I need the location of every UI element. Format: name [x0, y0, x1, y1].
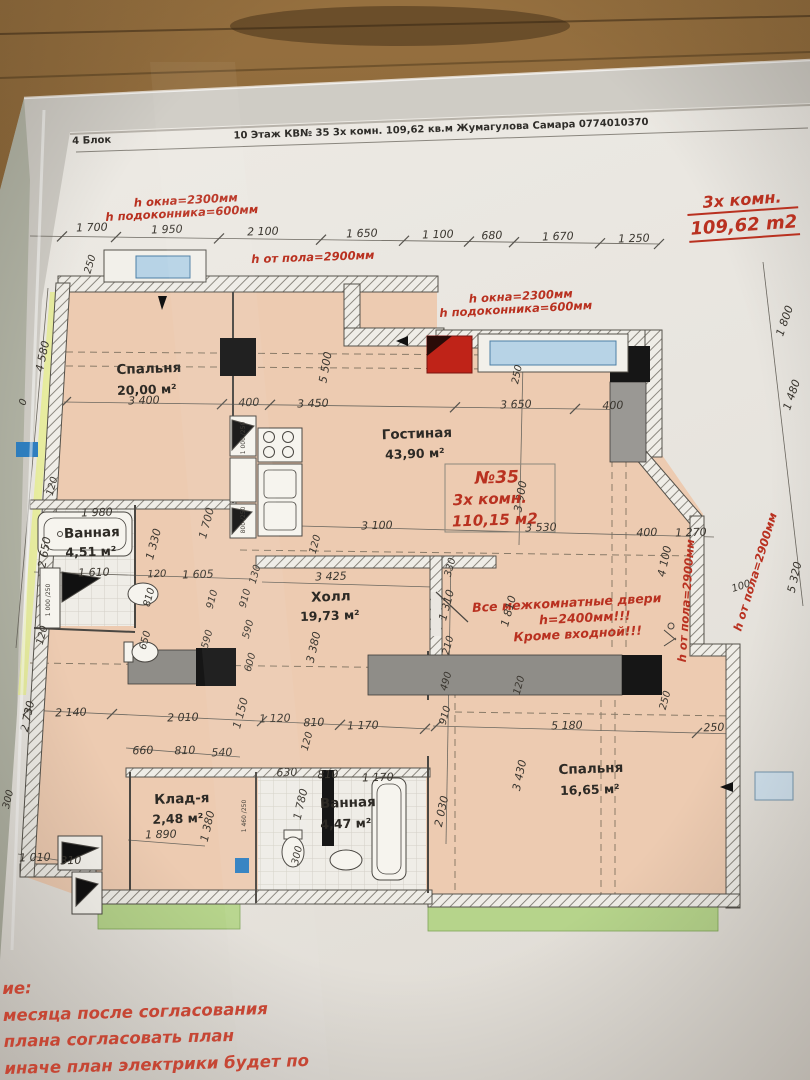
floor-plan-photo: 1 7001 9502 1001 6501 1006801 6701 250h …	[0, 0, 810, 1080]
apartment-title-block: 3х комн. 109,62 m2	[686, 186, 800, 243]
red-notes: ие: месяца после согласования плана согл…	[2, 968, 310, 1080]
photo-scene: 1 7001 9502 1001 6501 1006801 6701 250h …	[0, 0, 810, 1080]
photo-overlays	[0, 0, 810, 1080]
